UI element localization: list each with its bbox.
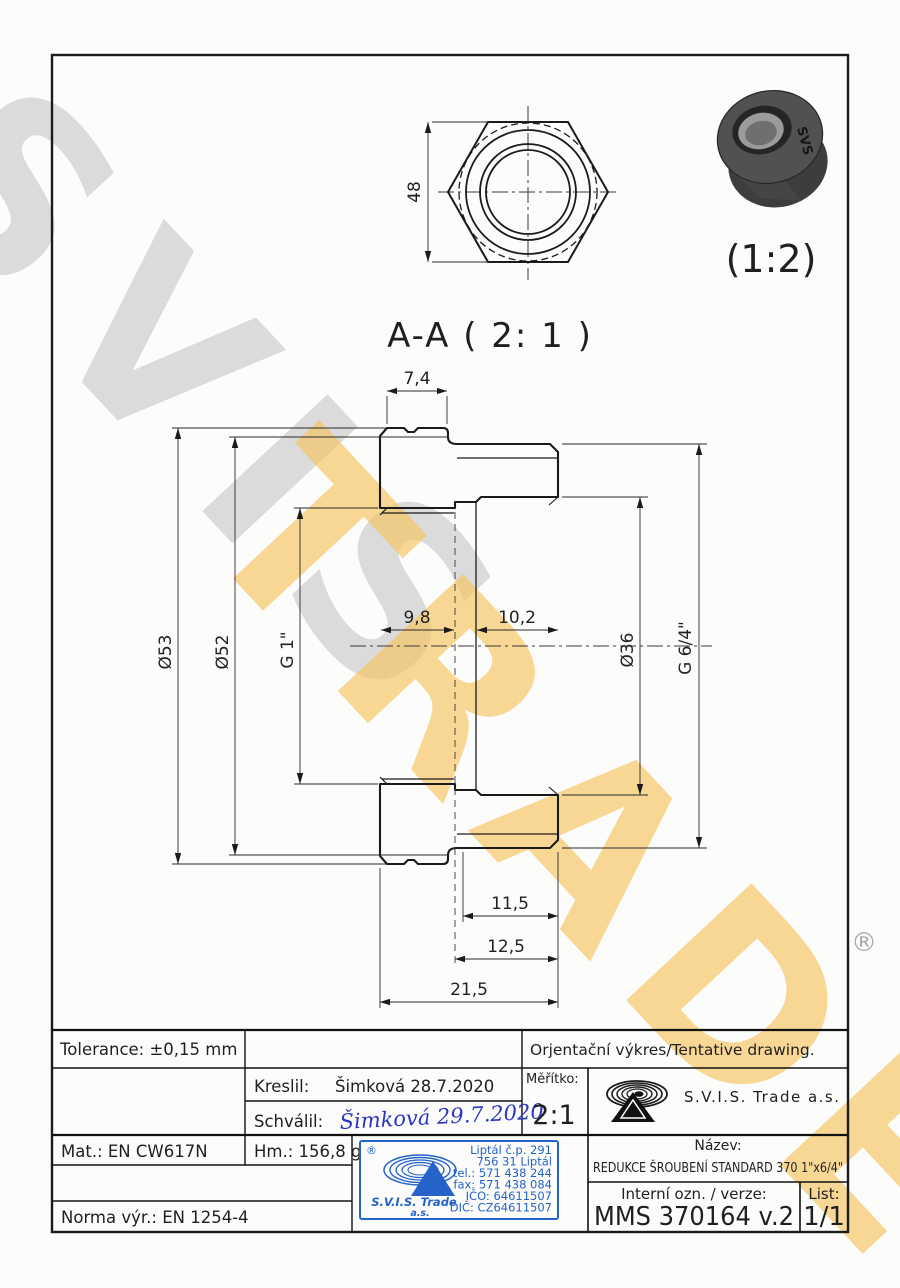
section-title: A-A ( 2: 1 ) [387,316,593,356]
dim-thread-right: G 6/4" [676,621,696,675]
dim-depth-left: 9,8 [403,608,430,628]
nazev-label: Název: [694,1138,741,1154]
dim-flange-width: 7,4 [403,369,430,389]
title-block: Tolerance: ±0,15 mm Orjentační výkres/Te… [52,1030,848,1232]
mat-text: Mat.: EN CW617N [61,1142,208,1161]
schvalil-label: Schválil: [254,1112,323,1131]
photo-scale-label: (1:2) [726,237,817,281]
section-dimensions: 7,4 Ø53 Ø52 G 1" 9,8 [156,369,707,1008]
dim-od: Ø53 [156,634,176,669]
tolerance-text: Tolerance: ±0,15 mm [59,1040,237,1059]
nazev-value: REDUKCE ŠROUBENÍ STANDARD 370 1"x6/4" [593,1160,843,1176]
dim-len1: 11,5 [491,894,529,914]
kreslil-value: Šimková 28.7.2020 [335,1077,494,1096]
interni-label: Interní ozn. / verze: [621,1185,767,1203]
interni-value: MMS 370164 v.2 [594,1202,794,1232]
stamp-brand2: a.s. [410,1208,429,1219]
meritko-value: 2:1 [532,1100,575,1131]
stamp-logo [384,1155,456,1196]
company-logo [607,1081,667,1122]
stamp-line-6: DIČ: CZ64611507 [450,1200,552,1215]
technical-drawing: 48 SVS (1:2) A-A ( 2: 1 ) [0,0,900,1288]
dim-len2: 12,5 [487,937,525,957]
norma-text: Norma výr.: EN 1254-4 [61,1208,249,1227]
part-photo: SVS (1:2) [707,80,836,281]
schvalil-signature: Šimková 29.7.2020 [339,1099,544,1134]
kreslil-label: Kreslil: [254,1077,309,1096]
list-value: 1/1 [803,1202,845,1232]
dim-af: Ø52 [213,634,233,669]
hm-text: Hm.: 156,8 g [254,1142,361,1161]
dim-bore: Ø36 [618,632,638,667]
tentative-text: Orjentační výkres/Tentative drawing. [530,1041,815,1059]
dim-depth-right: 10,2 [498,608,536,628]
stamp-address: Liptál č.p. 291 756 31 Liptál tel.: 571 … [450,1143,552,1215]
company-name: S.V.I.S. Trade a.s. [684,1088,841,1106]
dim-thread-left: G 1" [278,631,298,668]
stamp-registered-mark: ® [366,1144,377,1157]
registered-mark: ® [851,928,877,958]
stamp-brand: S.V.I.S. Trade [371,1195,457,1209]
top-view: 48 [405,106,618,280]
company-stamp: ® S.V.I.S. Trade a.s. Liptál č.p. 291 75… [360,1141,558,1219]
meritko-label: Měřítko: [526,1072,579,1087]
dim-48-label: 48 [405,181,425,203]
dim-len-total: 21,5 [450,980,488,1000]
drawing-sheet: SVIS TRADE 48 [0,0,900,1288]
list-label: List: [808,1185,839,1203]
